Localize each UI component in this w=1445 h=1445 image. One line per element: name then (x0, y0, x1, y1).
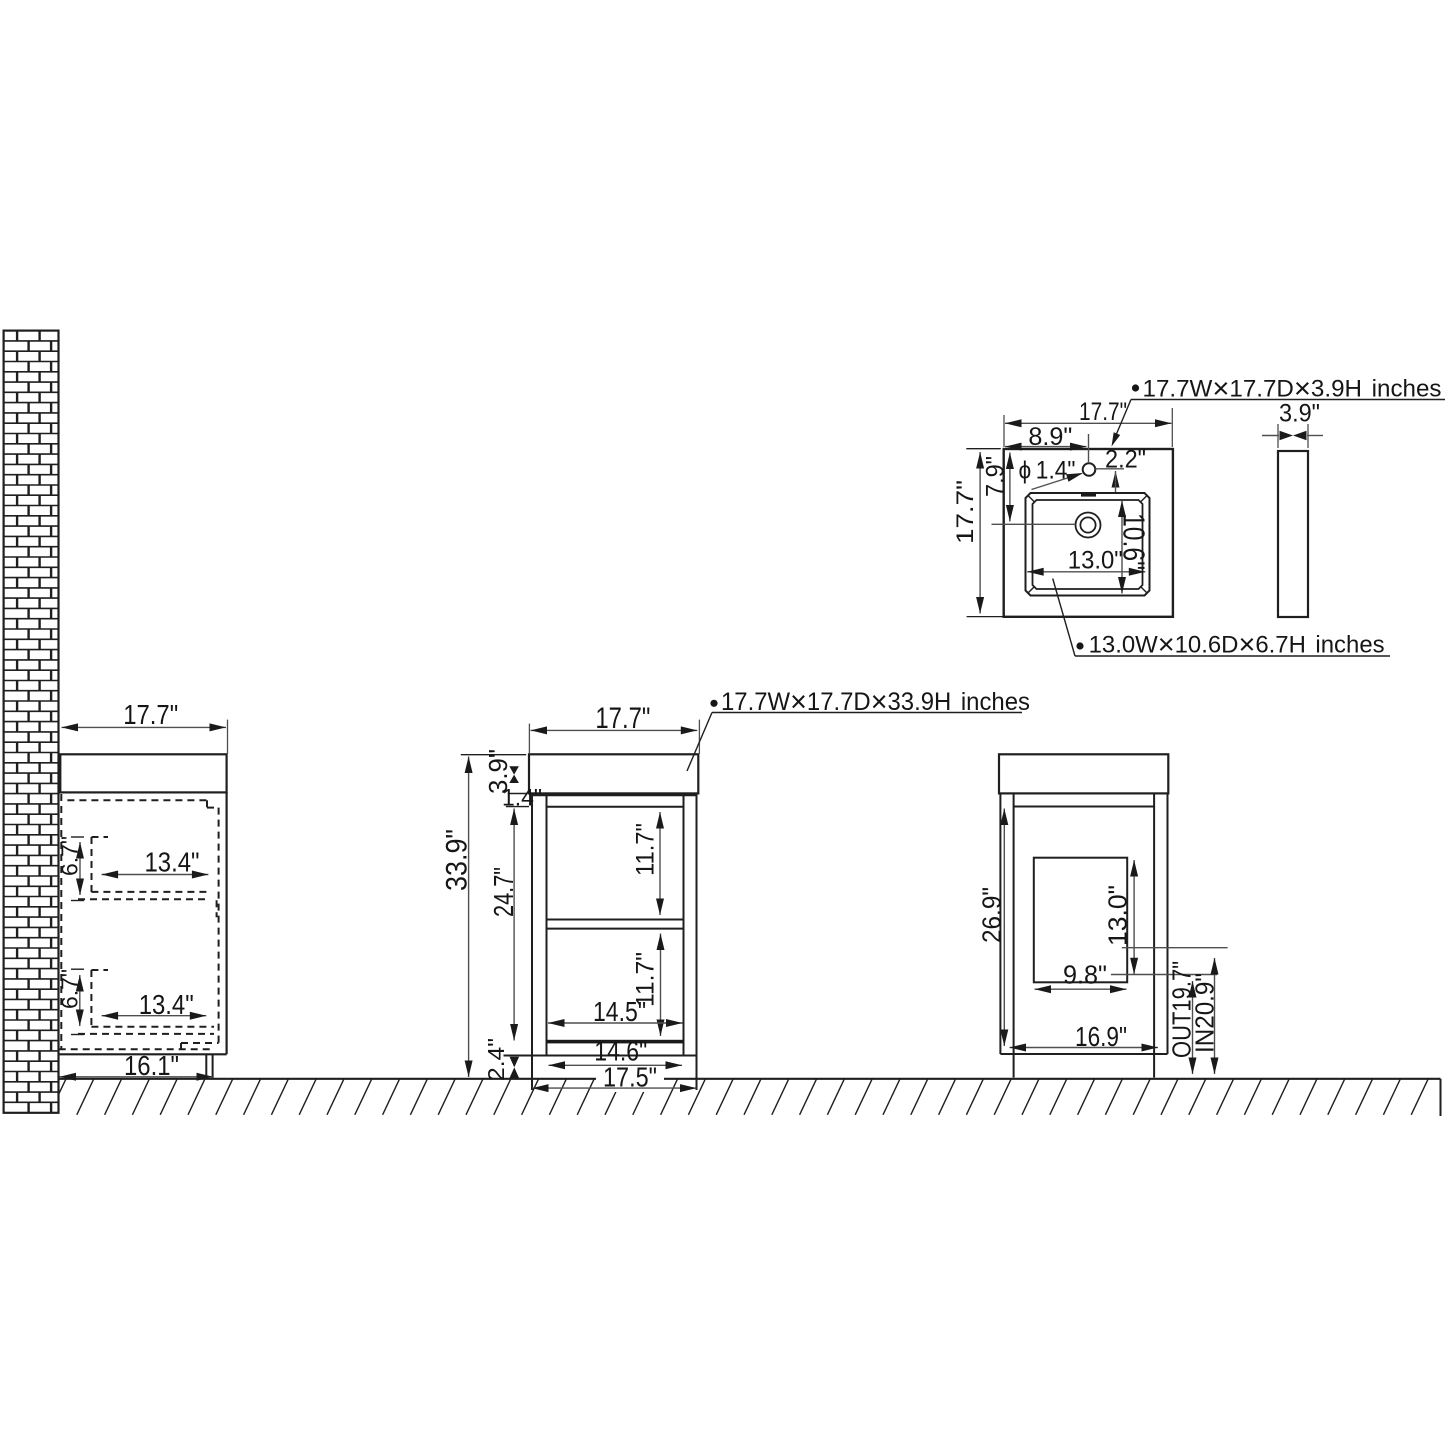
svg-text:ϕ 1.4": ϕ 1.4" (1019, 457, 1076, 485)
svg-text:IN20.9": IN20.9" (1190, 973, 1220, 1053)
svg-text:17.7": 17.7" (1079, 398, 1127, 426)
svg-text:9.8": 9.8" (1063, 960, 1107, 990)
svg-text:8.9": 8.9" (1028, 423, 1072, 451)
svg-text:17.7W×​17.7D×​33.9H inches: 17.7W×​17.7D×​33.9H inches (721, 686, 1030, 719)
svg-text:14.5": 14.5" (593, 996, 646, 1027)
svg-text:24.7": 24.7" (488, 867, 519, 917)
svg-text:16.1": 16.1" (124, 1050, 179, 1081)
svg-text:7.9": 7.9" (982, 456, 1010, 497)
svg-text:6.7": 6.7" (57, 969, 83, 1009)
svg-text:11.7": 11.7" (632, 823, 660, 876)
svg-text:17.5": 17.5" (603, 1062, 657, 1093)
svg-text:13.0": 13.0" (1068, 547, 1123, 575)
svg-text:17.7": 17.7" (595, 702, 650, 735)
svg-text:2.2": 2.2" (1105, 446, 1146, 474)
svg-text:13.0": 13.0" (1103, 885, 1133, 946)
svg-text:13.4": 13.4" (139, 989, 194, 1020)
svg-text:16.9": 16.9" (1075, 1021, 1127, 1052)
svg-text:17.7": 17.7" (952, 480, 979, 544)
svg-text:13.4": 13.4" (145, 847, 200, 878)
svg-text:33.9": 33.9" (441, 829, 474, 891)
svg-text:17.7": 17.7" (123, 699, 178, 730)
svg-text:6.7": 6.7" (57, 836, 83, 876)
svg-text:26.9": 26.9" (977, 887, 1007, 943)
svg-text:1.4": 1.4" (502, 785, 542, 812)
svg-text:2.4": 2.4" (483, 1038, 509, 1081)
